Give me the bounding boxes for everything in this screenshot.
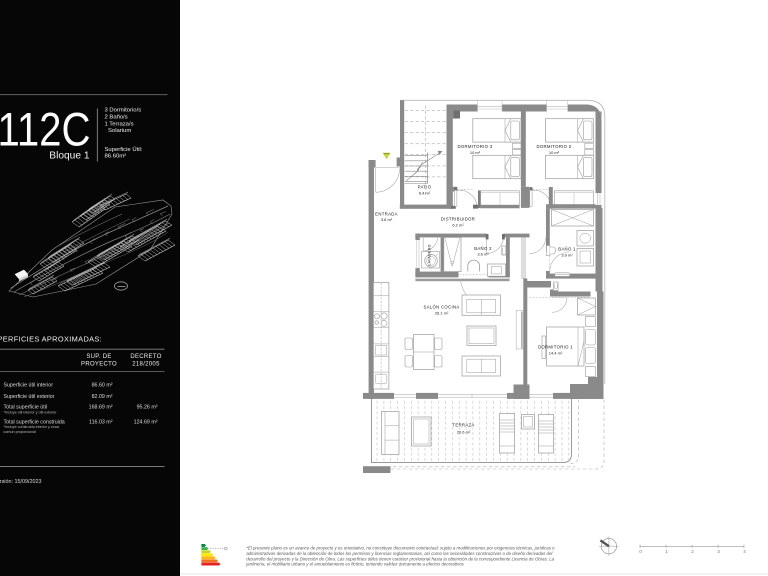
svg-text:*Incluye útil interior y útil: *Incluye útil interior y útil exterior: [4, 410, 58, 414]
svg-text:1 Terraza/s: 1 Terraza/s: [105, 121, 134, 127]
svg-text:DORMITORIO 1: DORMITORIO 1: [538, 345, 573, 350]
svg-text:3.6 m²: 3.6 m²: [477, 252, 489, 257]
svg-text:BAÑO 1: BAÑO 1: [558, 247, 576, 252]
svg-text:20.6 m²: 20.6 m²: [457, 429, 471, 434]
svg-text:1: 1: [665, 549, 668, 554]
svg-text:82.09 m²: 82.09 m²: [92, 394, 113, 400]
svg-text:2 Baño/s: 2 Baño/s: [105, 114, 128, 120]
svg-text:0: 0: [639, 549, 642, 554]
svg-text:ENTRADA: ENTRADA: [375, 211, 398, 216]
svg-text:PATIO: PATIO: [418, 185, 432, 190]
svg-text:14.4 m²: 14.4 m²: [549, 351, 563, 356]
svg-text:común proporcional: común proporcional: [4, 430, 37, 434]
svg-text:86.60 m²: 86.60 m²: [92, 382, 113, 388]
svg-text:administrativas derivadas de l: administrativas derivadas de la obtenció…: [246, 551, 553, 556]
svg-text:LAVADERO: LAVADERO: [428, 244, 432, 265]
svg-text:95.26 m²: 95.26 m²: [137, 404, 158, 410]
svg-text:26.1 m²: 26.1 m²: [435, 311, 449, 316]
svg-text:3: 3: [717, 549, 720, 554]
svg-text:jardinería, el mobiliario urba: jardinería, el mobiliario urbano y el am…: [245, 562, 464, 567]
svg-text:Bloque 1: Bloque 1: [49, 151, 90, 162]
svg-text:218/2005: 218/2005: [132, 361, 160, 367]
svg-text:desarrollo del proyecto y la D: desarrollo del proyecto y la Dirección d…: [246, 556, 554, 561]
svg-text:10 m²: 10 m²: [549, 150, 560, 155]
svg-text:DORMITORIO 2: DORMITORIO 2: [536, 144, 571, 149]
svg-text:168.69 m²: 168.69 m²: [89, 404, 113, 410]
svg-text:BAÑO 2: BAÑO 2: [474, 246, 492, 251]
svg-text:116.03 m²: 116.03 m²: [89, 419, 113, 425]
svg-text:DORMITORIO 3: DORMITORIO 3: [457, 144, 492, 149]
svg-text:Superficie útil interior: Superficie útil interior: [4, 382, 54, 388]
svg-text:SUPERFICIES APROXIMADAS:: SUPERFICIES APROXIMADAS:: [0, 335, 102, 344]
svg-text:124.69 m²: 124.69 m²: [134, 419, 158, 425]
svg-text:3.9 m²: 3.9 m²: [561, 252, 573, 257]
svg-text:DECRETO: DECRETO: [130, 354, 161, 360]
svg-text:10 m²: 10 m²: [470, 150, 481, 155]
svg-text:Solarium: Solarium: [108, 128, 131, 134]
svg-text:86.60m²: 86.60m²: [105, 154, 127, 160]
svg-text:SALÓN COCINA: SALÓN COCINA: [423, 304, 459, 309]
svg-text:Versión: 15/09/2023: Versión: 15/09/2023: [0, 479, 41, 485]
svg-text:3 Dormitorio/s: 3 Dormitorio/s: [105, 108, 142, 114]
svg-text:4: 4: [743, 549, 746, 554]
svg-text:SUP. DE: SUP. DE: [86, 354, 111, 360]
svg-text:DISTRIBUIDOR: DISTRIBUIDOR: [441, 217, 475, 222]
svg-text:112C: 112C: [0, 103, 91, 156]
svg-text:6.2 m²: 6.2 m²: [452, 223, 464, 228]
svg-text:PROYECTO: PROYECTO: [81, 361, 117, 367]
svg-text:3.6 m²: 3.6 m²: [381, 217, 393, 222]
svg-text:Superficie útil exterior: Superficie útil exterior: [4, 394, 55, 400]
svg-text:2: 2: [691, 549, 694, 554]
svg-text:TERRAZA: TERRAZA: [452, 423, 474, 428]
svg-text:*El presente plano es un avanc: *El presente plano es un avance de proye…: [246, 546, 555, 551]
svg-text:Superficie Útil:: Superficie Útil:: [105, 146, 143, 153]
svg-text:*Incluye construida interior y: *Incluye construida interior y zona: [4, 425, 60, 429]
svg-text:6.4 m²: 6.4 m²: [419, 191, 431, 196]
